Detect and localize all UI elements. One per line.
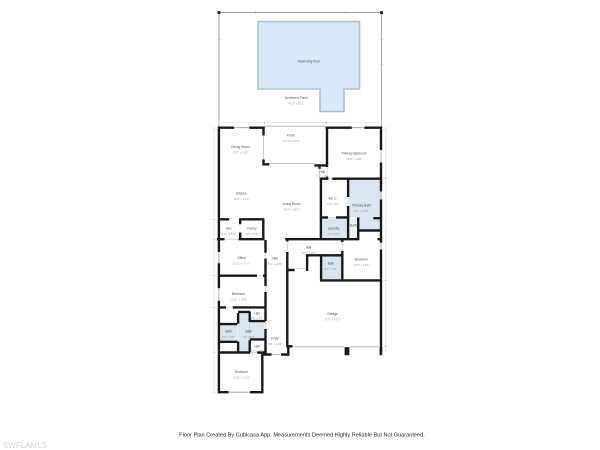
svg-text:3'6" x 3'6": 3'6" x 3'6" [251,316,264,320]
svg-text:6'6" x 11'6": 6'6" x 11'6" [268,342,282,346]
svg-text:Hall: Hall [254,345,260,349]
svg-text:Porch: Porch [287,133,296,137]
svg-text:Bedroom: Bedroom [355,258,368,262]
svg-text:Living Room: Living Room [283,202,301,206]
svg-text:Bedroom: Bedroom [235,370,248,374]
svg-text:5'10" x 6'9": 5'10" x 6'9" [221,232,235,236]
svg-text:7'6" x 5'6": 7'6" x 5'6" [242,335,255,339]
svg-text:37'0" x 22'7": 37'0" x 22'7" [325,317,341,321]
svg-text:Hall: Hall [272,257,278,261]
svg-text:Den: Den [226,227,232,231]
svg-text:19'4" x 22'0": 19'4" x 22'0" [284,207,300,211]
svg-text:6'0" x 6'9": 6'0" x 6'9" [246,232,259,236]
svg-text:Bath: Bath [246,330,253,334]
svg-text:Swimming Pool: Swimming Pool [298,60,320,64]
svg-text:12'11" x 10'5": 12'11" x 10'5" [233,262,250,266]
svg-text:8'0" x 10'5": 8'0" x 10'5" [354,209,368,213]
svg-text:7'6" x 6'0": 7'6" x 6'0" [327,232,340,236]
svg-text:13'10" x 11'6": 13'10" x 11'6" [282,139,299,143]
svg-text:Bath: Bath [225,330,232,334]
svg-text:5'6" x 5'5": 5'6" x 5'5" [222,335,235,339]
svg-text:Bath: Bath [328,262,335,266]
svg-text:Hall: Hall [254,312,260,316]
svg-text:Screened Porch: Screened Porch [285,96,308,100]
svg-text:3'6" x 16'5": 3'6" x 16'5" [268,262,282,266]
svg-text:Hall: Hall [320,170,326,174]
svg-text:7'6" x 6'5": 7'6" x 6'5" [327,202,340,206]
svg-text:Floor Plan Created By Cubicasa: Floor Plan Created By Cubicasa App. Meas… [179,433,425,439]
svg-text:12'8" x 11'0": 12'8" x 11'0" [233,150,249,154]
svg-text:Bedroom: Bedroom [232,292,245,296]
svg-text:12'11" x 13'8": 12'11" x 13'8" [230,297,247,301]
svg-text:Laundry: Laundry [328,227,340,231]
svg-text:5'6" x 7'6": 5'6" x 7'6" [325,267,338,271]
svg-text:11'6" x 11'6": 11'6" x 11'6" [354,263,369,267]
svg-text:W.I.C.: W.I.C. [329,197,338,201]
svg-text:Primary Bath: Primary Bath [352,204,371,208]
svg-text:Hall: Hall [306,246,312,250]
svg-text:13'0" x 16'5": 13'0" x 16'5" [234,197,250,201]
svg-text:Garage: Garage [327,312,338,316]
svg-text:Kitchen: Kitchen [236,192,247,196]
svg-text:13'7" x 4'6": 13'7" x 4'6" [301,251,315,255]
svg-text:12'11" x 11'1": 12'11" x 11'1" [233,376,250,380]
svg-text:Foyer: Foyer [271,337,280,341]
svg-text:Dining Room: Dining Room [231,145,250,149]
svg-text:SWFLAMLS: SWFLAMLS [3,441,47,450]
svg-text:13'8" x 14'8": 13'8" x 14'8" [346,157,362,161]
svg-text:Office: Office [237,256,245,260]
svg-text:Primary Bedroom: Primary Bedroom [342,152,367,156]
svg-text:3'6" x 4'6": 3'6" x 4'6" [251,349,264,353]
svg-text:Pantry: Pantry [247,227,257,231]
svg-text:7'1" x 3'6": 7'1" x 3'6" [316,175,329,179]
svg-text:41'2" x 35'1": 41'2" x 35'1" [289,102,305,106]
svg-text:Bath: Bath [350,224,357,228]
